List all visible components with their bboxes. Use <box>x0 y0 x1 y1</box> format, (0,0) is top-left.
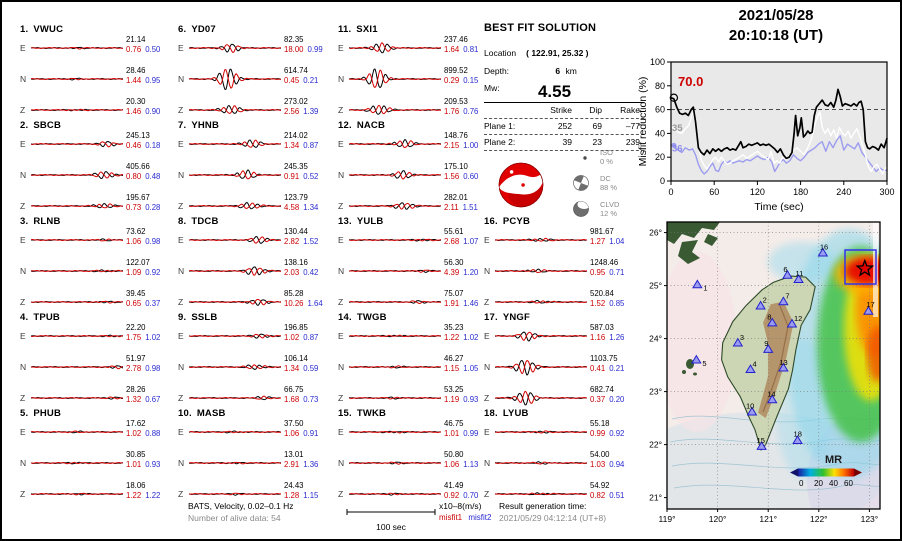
channel-row-E: E196.851.020.87 <box>178 320 336 352</box>
misfit-values: 1.020.87 <box>284 333 336 343</box>
station-map-number: 16 <box>820 243 828 252</box>
misfit1-value: 1.09 <box>126 268 141 277</box>
peak-amplitude: 17.62 <box>126 419 178 429</box>
mr-legend-title: MR <box>825 454 842 466</box>
channel-label: E <box>338 43 344 53</box>
misfit-values: 2.030.42 <box>284 268 336 278</box>
channel-values: 245.350.910.52 <box>284 162 336 181</box>
station-block-LYUB: 18.LYUBE55.180.990.92N54.001.030.94Z54.9… <box>484 408 642 504</box>
misfit1-value: 4.58 <box>284 203 299 212</box>
channel-label: N <box>20 266 26 276</box>
misfit2-value: 1.00 <box>463 141 478 150</box>
svg-text:100: 100 <box>650 57 665 67</box>
station-block-PCYB: 16.PCYBE981.671.271.04N1248.460.950.71Z5… <box>484 216 642 312</box>
misfit2-value: 1.02 <box>463 333 478 342</box>
map-lat-tick: 26° <box>649 228 662 238</box>
channel-label: Z <box>484 297 489 307</box>
station-map-number: 8 <box>767 313 771 322</box>
station-block-YULB: 13.YULBE55.612.681.07N56.304.391.20Z75.0… <box>338 216 496 312</box>
plane1-strike: 252 <box>532 121 572 131</box>
misfit2-value: 0.70 <box>463 491 478 500</box>
channel-label: Z <box>178 489 183 499</box>
misfit-values: 0.910.52 <box>284 172 336 182</box>
channel-row-E: E46.751.010.99 <box>338 416 496 448</box>
channel-values: 28.461.440.95 <box>126 66 178 85</box>
station-block-PHUB: 5.PHUBE17.621.020.88N30.851.010.93Z18.06… <box>20 408 178 504</box>
channel-values: 39.450.650.37 <box>126 289 178 308</box>
station-map-number: 15 <box>757 436 765 445</box>
misfit1-value: 18.00 <box>284 45 304 54</box>
waveform-trace <box>189 63 281 95</box>
peak-amplitude: 122.07 <box>126 258 178 268</box>
misfit2-value: 0.92 <box>145 268 160 277</box>
misfit2-value: 1.15 <box>303 491 318 500</box>
channel-row-E: E55.180.990.92 <box>484 416 642 448</box>
peak-amplitude: 28.46 <box>126 66 178 76</box>
misfit2-value: 0.60 <box>463 172 478 181</box>
station-map-number: 11 <box>796 269 804 278</box>
misfit-values: 0.650.37 <box>126 299 178 309</box>
svg-text:120: 120 <box>750 187 765 197</box>
channel-row-N: N138.162.030.42 <box>178 255 336 287</box>
peak-amplitude: 24.43 <box>284 481 336 491</box>
waveform-trace <box>189 32 281 64</box>
channel-values: 405.660.800.48 <box>126 162 178 181</box>
misfit1-value: 0.99 <box>590 429 605 438</box>
channel-label: Z <box>178 393 183 403</box>
channel-label: Z <box>20 201 25 211</box>
misfit1-value: 1.56 <box>444 172 459 181</box>
svg-text:40: 40 <box>655 128 665 138</box>
misfit1-value: 1.01 <box>444 429 459 438</box>
station-block-SBCB: 2.SBCBE245.130.460.18N405.660.800.48Z195… <box>20 120 178 216</box>
misfit2-value: 1.26 <box>609 333 624 342</box>
channel-values: 587.031.161.26 <box>590 323 642 342</box>
initial-misfit-annotation: 70.0 <box>678 74 703 89</box>
channel-values: 55.180.990.92 <box>590 419 642 438</box>
waveform-trace <box>495 255 587 287</box>
misfit1-value: 1.06 <box>444 460 459 469</box>
station-map-number: 3 <box>740 333 744 342</box>
channel-label: E <box>20 235 26 245</box>
map-lat-tick: 21° <box>649 493 662 503</box>
channel-row-N: N405.660.800.48 <box>20 159 178 191</box>
waveform-trace <box>31 320 123 352</box>
channel-values: 1248.460.950.71 <box>590 258 642 277</box>
svg-text:60: 60 <box>709 187 719 197</box>
map-lon-tick: 120° <box>709 514 727 524</box>
plane1-rake: –77 <box>602 121 640 131</box>
misfit-values: 2.780.98 <box>126 364 178 374</box>
channel-row-N: N51.972.780.98 <box>20 351 178 383</box>
misfit2-value: 0.92 <box>609 429 624 438</box>
best-fit-title: BEST FIT SOLUTION <box>484 22 596 34</box>
misfit-values: 1.751.02 <box>126 333 178 343</box>
misfit1-value: 1.03 <box>590 460 605 469</box>
channel-label: Z <box>20 489 25 499</box>
misfit-values: 1.520.85 <box>590 299 642 309</box>
map-station-14: 14 <box>767 390 776 403</box>
misfit2-value: 0.71 <box>609 268 624 277</box>
misfit2-value: 0.15 <box>463 76 478 85</box>
misfit2-value: 0.73 <box>303 395 318 404</box>
misfit1-value: 1.02 <box>284 333 299 342</box>
channel-row-E: E21.140.760.50 <box>20 32 178 64</box>
channel-row-E: E35.231.221.02 <box>338 320 496 352</box>
iso-icon <box>576 151 594 169</box>
footer-units: x10–8(m/s) misfit1 misfit2 <box>439 500 491 524</box>
footer-result-time: Result generation time: 2021/05/29 04:12… <box>499 500 606 524</box>
misfit-values: 1.271.04 <box>590 237 642 247</box>
peak-amplitude: 520.84 <box>590 289 642 299</box>
depth-unit: km <box>566 66 577 76</box>
amplitude-unit: x10–8(m/s) <box>439 500 491 512</box>
channel-values: 21.140.760.50 <box>126 35 178 54</box>
peak-amplitude: 587.03 <box>590 323 642 333</box>
map-station-11: 11 <box>794 269 803 282</box>
channel-label: N <box>484 362 490 372</box>
scalebar-label: 100 sec <box>346 521 436 533</box>
misfit2-value: 0.99 <box>308 45 323 54</box>
waveform-trace <box>31 159 123 191</box>
map-lat-tick: 23° <box>649 387 662 397</box>
channel-row-E: E17.621.020.88 <box>20 416 178 448</box>
taiwan-map: 123456789101112131415161718MR020406026°2… <box>642 214 902 541</box>
misfit2-value: 0.67 <box>145 395 160 404</box>
misfit1-value: 2.82 <box>284 237 299 246</box>
scalebar-line <box>346 508 436 516</box>
misfit1-value: 0.92 <box>444 491 459 500</box>
channel-label: E <box>338 427 344 437</box>
event-time: 20:10:18 (UT) <box>650 26 902 46</box>
svg-text:240: 240 <box>836 187 851 197</box>
misfit2-value: 1.07 <box>463 237 478 246</box>
misfit1-value: 2.68 <box>444 237 459 246</box>
misfit-values: 2.821.52 <box>284 237 336 247</box>
y-axis-label: Misfit reduction (%) <box>637 77 649 167</box>
rake-header: Rake <box>602 105 640 115</box>
misfit1-value: 1.15 <box>444 364 459 373</box>
misfit1-value: 2.15 <box>444 141 459 150</box>
channel-row-E: E37.501.060.91 <box>178 416 336 448</box>
channel-row-N: N614.740.450.21 <box>178 63 336 95</box>
misfit2-value: 0.28 <box>145 203 160 212</box>
misfit2-value: 0.91 <box>303 429 318 438</box>
channel-row-N: N106.141.340.59 <box>178 351 336 383</box>
misfit-values: 1.030.94 <box>590 460 642 470</box>
depth-label: Depth: <box>484 66 509 76</box>
misfit2-value: 1.52 <box>303 237 318 246</box>
channel-values: 138.162.030.42 <box>284 258 336 277</box>
misfit1-value: 0.37 <box>590 395 605 404</box>
channel-row-N: N122.071.090.92 <box>20 255 178 287</box>
misfit-values: 0.820.51 <box>590 491 642 501</box>
channel-label: N <box>338 170 344 180</box>
waveform-trace <box>31 478 123 510</box>
peak-amplitude: 138.16 <box>284 258 336 268</box>
channel-values: 28.261.320.67 <box>126 385 178 404</box>
svg-text:180: 180 <box>793 187 808 197</box>
misfit2-value: 0.20 <box>609 395 624 404</box>
channel-values: 130.442.821.52 <box>284 227 336 246</box>
channel-label: Z <box>338 489 343 499</box>
channel-values: 106.141.340.59 <box>284 354 336 373</box>
peak-amplitude: 682.74 <box>590 385 642 395</box>
waveform-trace <box>189 320 281 352</box>
station-map-number: 7 <box>785 292 789 301</box>
channel-row-E: E73.621.060.98 <box>20 224 178 256</box>
channel-label: N <box>178 362 184 372</box>
channel-label: E <box>20 43 26 53</box>
peak-amplitude: 405.66 <box>126 162 178 172</box>
clvd-value: 12 % <box>600 209 617 218</box>
misfit1-value: 10.26 <box>284 299 304 308</box>
channel-values: 123.794.581.34 <box>284 193 336 212</box>
misfit2-value: 1.34 <box>303 203 318 212</box>
misfit1-value: 1.75 <box>126 333 141 342</box>
station-block-SXI1: 11.SXI1E237.461.640.81N899.520.290.15Z20… <box>338 24 496 120</box>
misfit1-value: 1.22 <box>126 491 141 500</box>
p-axis-dot <box>510 170 514 174</box>
channel-values: 520.841.520.85 <box>590 289 642 308</box>
misfit2-value: 0.42 <box>303 268 318 277</box>
svg-text:0: 0 <box>660 176 665 186</box>
station-block-YHNB: 7.YHNBE214.021.340.87N245.350.910.52Z123… <box>178 120 336 216</box>
map-station-15: 15 <box>757 436 766 449</box>
misfit2-value: 1.51 <box>463 203 478 212</box>
result-time-value: 2021/05/29 04:12:14 (UT+8) <box>499 512 606 524</box>
misfit1-value: 0.73 <box>126 203 141 212</box>
channel-values: 82.3518.000.99 <box>284 35 336 54</box>
waveform-trace <box>31 416 123 448</box>
alive-data-count: Number of alive data: 54 <box>188 512 294 524</box>
channel-label: Z <box>178 105 183 115</box>
map-lat-tick: 22° <box>649 440 662 450</box>
station-map-number: 9 <box>764 339 768 348</box>
waveform-trace <box>189 447 281 479</box>
peak-amplitude: 130.44 <box>284 227 336 237</box>
channel-label: E <box>484 235 490 245</box>
channel-label: E <box>178 235 184 245</box>
svg-text:20: 20 <box>655 152 665 162</box>
channel-label: E <box>338 139 344 149</box>
misfit2-value: 1.20 <box>463 268 478 277</box>
channel-values: 37.501.060.91 <box>284 419 336 438</box>
map-lon-tick: 121° <box>759 514 777 524</box>
misfit1-value: 1.01 <box>126 460 141 469</box>
channel-values: 981.671.271.04 <box>590 227 642 246</box>
waveform-trace <box>349 351 441 383</box>
station-map-number: 10 <box>746 402 754 411</box>
blue-series-annotation: 36 <box>672 143 683 154</box>
waveform-trace <box>349 320 441 352</box>
misfit-values: 1.090.92 <box>126 268 178 278</box>
peak-amplitude: 106.14 <box>284 354 336 364</box>
channel-label: N <box>178 458 184 468</box>
channel-label: N <box>338 74 344 84</box>
peak-amplitude: 51.97 <box>126 354 178 364</box>
peak-amplitude: 13.01 <box>284 450 336 460</box>
channel-label: Z <box>338 297 343 307</box>
misfit2-value: 0.48 <box>145 172 160 181</box>
channel-label: N <box>338 266 344 276</box>
misfit2-value: 0.99 <box>463 429 478 438</box>
channel-values: 122.071.090.92 <box>126 258 178 277</box>
channel-label: E <box>178 43 184 53</box>
channel-values: 73.621.060.98 <box>126 227 178 246</box>
channel-values: 17.621.020.88 <box>126 419 178 438</box>
mw-value: 4.55 <box>538 82 571 101</box>
misfit1-legend: misfit1 <box>439 513 462 522</box>
misfit2-value: 0.37 <box>145 299 160 308</box>
channel-values: 18.061.221.22 <box>126 481 178 500</box>
x-axis-label: Time (sec) <box>754 201 803 213</box>
misfit-values: 10.261.64 <box>284 299 336 309</box>
misfit-values: 0.450.21 <box>284 76 336 86</box>
channel-row-Z: Z18.061.221.22 <box>20 478 178 510</box>
peak-amplitude: 22.20 <box>126 323 178 333</box>
channel-values: 20.301.460.90 <box>126 97 178 116</box>
channel-label: N <box>20 362 26 372</box>
misfit1-value: 0.80 <box>126 172 141 181</box>
misfit2-value: 0.87 <box>303 333 318 342</box>
misfit-values: 2.561.39 <box>284 107 336 117</box>
mr-legend-tick: 20 <box>814 479 823 488</box>
peak-amplitude: 54.00 <box>590 450 642 460</box>
plane1-label: Plane 1: <box>484 121 532 131</box>
misfit2-value: 0.81 <box>463 45 478 54</box>
waveform-trace <box>349 447 441 479</box>
plane2-dip: 23 <box>572 137 602 147</box>
waveform-trace <box>349 159 441 191</box>
misfit2-value: 0.93 <box>463 395 478 404</box>
misfit2-value: 0.85 <box>609 299 624 308</box>
map-lon-tick: 119° <box>659 514 676 524</box>
misfit1-value: 0.29 <box>444 76 459 85</box>
misfit2-value: 0.51 <box>609 491 624 500</box>
channel-values: 214.021.340.87 <box>284 131 336 150</box>
channel-label: Z <box>338 105 343 115</box>
channel-label: N <box>20 458 26 468</box>
misfit1-value: 1.34 <box>284 141 299 150</box>
misfit1-value: 1.64 <box>444 45 459 54</box>
misfit-values: 4.581.34 <box>284 203 336 213</box>
channel-row-N: N1248.460.950.71 <box>484 255 642 287</box>
station-map-number: 5 <box>702 359 706 368</box>
misfit2-value: 0.98 <box>145 237 160 246</box>
channel-row-N: N46.271.151.05 <box>338 351 496 383</box>
misfit1-value: 4.39 <box>444 268 459 277</box>
misfit1-value: 1.28 <box>284 491 299 500</box>
channel-row-E: E22.201.751.02 <box>20 320 178 352</box>
channel-row-N: N245.350.910.52 <box>178 159 336 191</box>
svg-text:0: 0 <box>668 187 673 197</box>
peak-amplitude: 18.06 <box>126 481 178 491</box>
channel-row-E: E245.130.460.18 <box>20 128 178 160</box>
channel-label: N <box>484 458 490 468</box>
station-block-NACB: 12.NACBE148.762.151.00N175.101.560.60Z28… <box>338 120 496 216</box>
station-block-MASB: 10.MASBE37.501.060.91N13.012.911.36Z24.4… <box>178 408 336 504</box>
misfit1-value: 1.19 <box>444 395 459 404</box>
peak-amplitude: 28.26 <box>126 385 178 395</box>
event-datetime: 2021/05/28 20:10:18 (UT) <box>650 6 902 46</box>
footer-filter-info: BATS, Velocity, 0.02–0.1 Hz Number of al… <box>188 500 294 524</box>
channel-row-N: N13.012.911.36 <box>178 447 336 479</box>
peak-amplitude: 123.79 <box>284 193 336 203</box>
plane2-label: Plane 2: <box>484 137 532 147</box>
channel-label: E <box>338 235 344 245</box>
misfit1-value: 1.22 <box>444 333 459 342</box>
channel-row-E: E237.461.640.81 <box>338 32 496 64</box>
location-label: Location <box>484 48 516 58</box>
peak-amplitude: 66.75 <box>284 385 336 395</box>
channel-label: E <box>338 331 344 341</box>
misfit1-value: 1.68 <box>284 395 299 404</box>
misfit-values: 0.800.48 <box>126 172 178 182</box>
channel-label: Z <box>338 201 343 211</box>
misfit-values: 1.010.93 <box>126 460 178 470</box>
channel-label: N <box>178 170 184 180</box>
misfit1-value: 1.44 <box>126 76 141 85</box>
misfit1-value: 0.65 <box>126 299 141 308</box>
channel-values: 22.201.751.02 <box>126 323 178 342</box>
misfit2-value: 0.88 <box>145 429 160 438</box>
channel-label: N <box>178 74 184 84</box>
channel-label: Z <box>484 393 489 403</box>
event-date: 2021/05/28 <box>650 6 902 26</box>
time-scalebar: 100 sec <box>346 507 436 533</box>
channel-row-E: E214.021.340.87 <box>178 128 336 160</box>
svg-text:300: 300 <box>879 187 894 197</box>
misfit1-value: 1.16 <box>590 333 605 342</box>
misfit2-value: 1.04 <box>609 237 624 246</box>
station-block-SSLB: 9.SSLBE196.851.020.87N106.141.340.59Z66.… <box>178 312 336 408</box>
channel-row-E: E55.612.681.07 <box>338 224 496 256</box>
waveform-trace <box>189 255 281 287</box>
waveform-trace <box>495 447 587 479</box>
misfit-values: 1.320.67 <box>126 395 178 405</box>
misfit2-value: 0.52 <box>303 172 318 181</box>
waveform-trace <box>349 128 441 160</box>
misfit2-value: 0.50 <box>145 45 160 54</box>
channel-values: 13.012.911.36 <box>284 450 336 469</box>
white-series-annotation: 35 <box>672 123 683 134</box>
peak-amplitude: 196.85 <box>284 323 336 333</box>
misfit2-value: 0.98 <box>145 364 160 373</box>
channel-values: 1103.750.410.21 <box>590 354 642 373</box>
waveform-trace <box>31 255 123 287</box>
plane2-rake: 239 <box>602 137 640 147</box>
misfit1-value: 0.82 <box>590 491 605 500</box>
misfit-values: 0.460.18 <box>126 141 178 151</box>
channel-values: 54.001.030.94 <box>590 450 642 469</box>
channel-label: E <box>178 139 184 149</box>
waveform-trace <box>189 351 281 383</box>
mw-label: Mw: <box>484 83 500 93</box>
moment-tensor-report: 1.VWUCE21.140.760.50N28.461.440.95Z20.30… <box>0 0 902 541</box>
best-fit-solution-panel: BEST FIT SOLUTION Location( 122.91, 25.3… <box>484 16 648 216</box>
channel-row-N: N28.461.440.95 <box>20 63 178 95</box>
misfit-values: 1.680.73 <box>284 395 336 405</box>
waveform-trace <box>31 128 123 160</box>
iso-value: 0 % <box>600 157 613 166</box>
waveform-trace <box>495 416 587 448</box>
waveform-trace <box>349 255 441 287</box>
station-block-YNGF: 17.YNGFE587.031.161.26N1103.750.410.21Z6… <box>484 312 642 408</box>
peak-amplitude: 1248.46 <box>590 258 642 268</box>
channel-row-N: N899.520.290.15 <box>338 63 496 95</box>
misfit1-value: 1.06 <box>126 237 141 246</box>
